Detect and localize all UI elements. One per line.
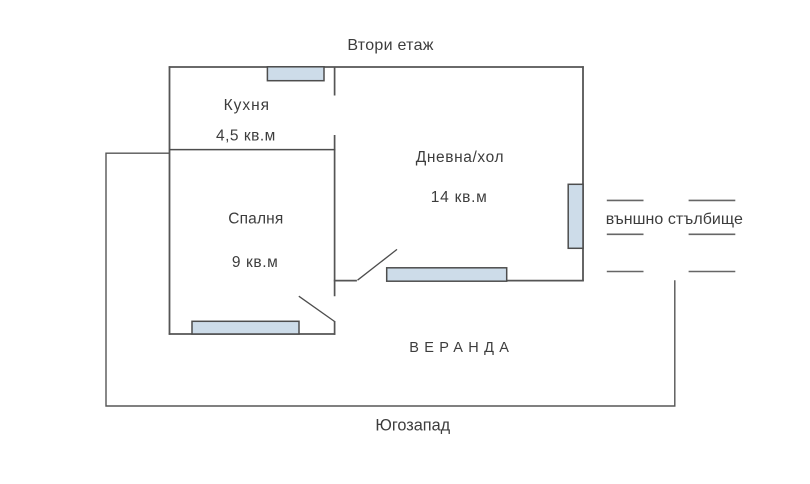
svg-text:Дневна/хол: Дневна/хол <box>416 149 504 166</box>
svg-text:Югозапад: Югозапад <box>375 417 450 435</box>
svg-text:външно стълбище: външно стълбище <box>606 211 743 228</box>
svg-text:9 кв.м: 9 кв.м <box>232 254 279 271</box>
svg-text:ВЕРАНДА: ВЕРАНДА <box>409 340 514 356</box>
svg-text:14 кв.м: 14 кв.м <box>431 189 488 206</box>
svg-text:4,5 кв.м: 4,5 кв.м <box>216 128 276 145</box>
svg-text:Втори етаж: Втори етаж <box>347 37 433 54</box>
svg-text:Спалня: Спалня <box>228 211 283 228</box>
svg-text:Кухня: Кухня <box>224 97 270 114</box>
